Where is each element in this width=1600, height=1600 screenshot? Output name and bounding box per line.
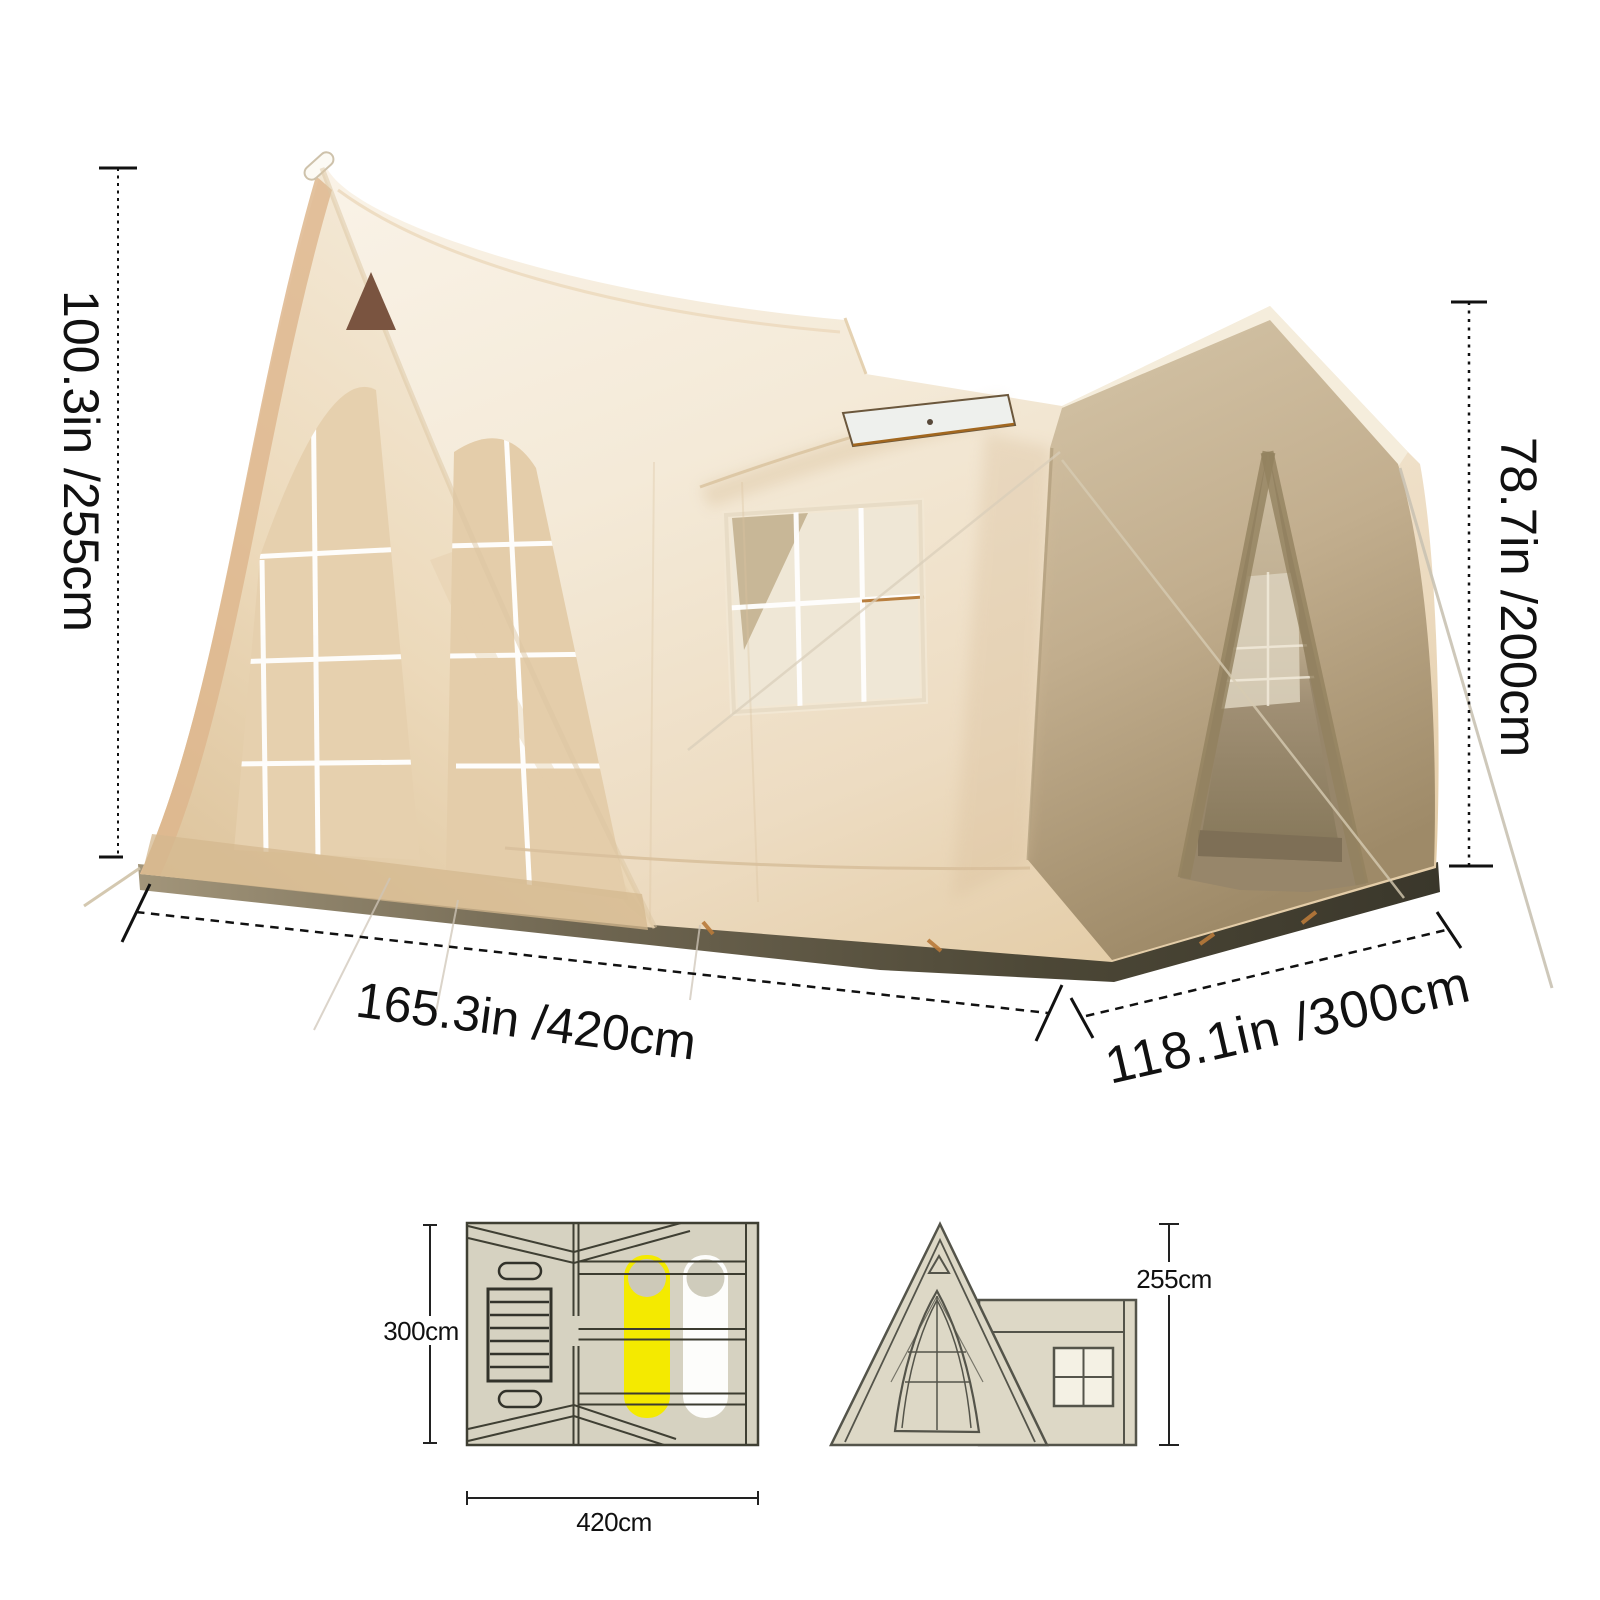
svg-text:300cm: 300cm xyxy=(383,1316,459,1346)
svg-text:100.3in /255cm: 100.3in /255cm xyxy=(53,290,109,632)
svg-text:420cm: 420cm xyxy=(576,1507,652,1537)
svg-text:255cm: 255cm xyxy=(1136,1264,1212,1294)
svg-text:78.7in /200cm: 78.7in /200cm xyxy=(1490,437,1547,757)
